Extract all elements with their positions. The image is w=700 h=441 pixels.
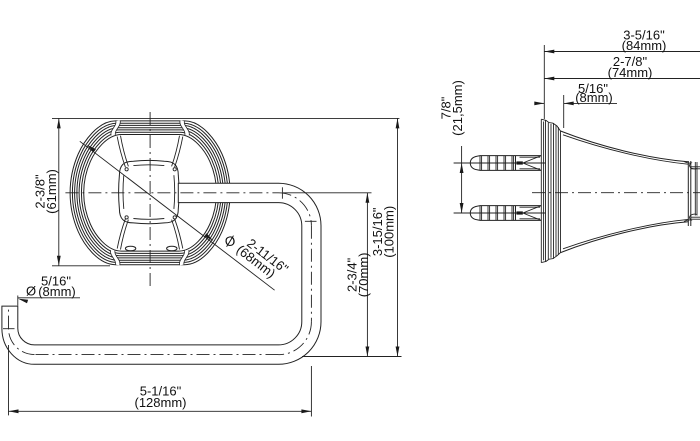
svg-text:(74mm): (74mm) — [608, 65, 653, 80]
svg-text:(70mm): (70mm) — [356, 253, 371, 298]
svg-text:(128mm): (128mm) — [134, 395, 186, 410]
svg-text:(84mm): (84mm) — [622, 38, 667, 53]
svg-text:(21,5mm): (21,5mm) — [450, 80, 465, 136]
svg-text:Ø: Ø — [26, 284, 36, 299]
svg-text:(8mm): (8mm) — [38, 284, 76, 299]
svg-text:(100mm): (100mm) — [382, 206, 397, 258]
svg-text:(8mm): (8mm) — [575, 90, 613, 105]
svg-text:(61mm): (61mm) — [44, 169, 59, 214]
